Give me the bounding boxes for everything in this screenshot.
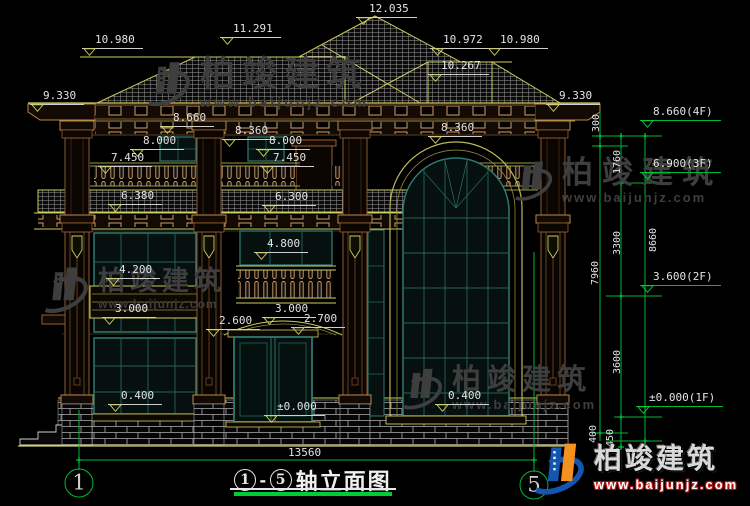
level-value: 8.660: [173, 111, 206, 124]
level-marker: 10.267: [428, 60, 489, 75]
level-value: 0.400: [448, 389, 481, 402]
level-value: 12.035: [369, 2, 409, 15]
site-logo-brand: 柏竣建筑: [594, 445, 738, 473]
axis-bubble-1: 1: [65, 469, 94, 498]
level-value: 10.972: [443, 33, 483, 46]
level-triangle-icon: [83, 48, 96, 56]
level-triangle-icon: [255, 252, 268, 260]
vertical-dimension: 3600: [613, 350, 623, 374]
level-value: ±0.000: [277, 400, 317, 413]
site-logo-icon: [528, 436, 588, 500]
level-triangle-icon: [547, 104, 560, 112]
level-value: 6.900(3F): [653, 157, 713, 170]
level-value: 10.980: [95, 33, 135, 46]
level-triangle-icon: [637, 406, 650, 414]
vertical-dimension: 8660: [649, 228, 659, 252]
floor-level-marker: 8.660(4F): [640, 106, 721, 121]
level-triangle-icon: [488, 48, 501, 56]
level-triangle-icon: [436, 404, 449, 412]
level-marker: 4.200: [106, 264, 160, 279]
vertical-dimension: 7960: [591, 261, 601, 285]
level-marker: 10.980: [82, 34, 143, 49]
level-triangle-icon: [99, 166, 112, 174]
level-triangle-icon: [263, 317, 276, 325]
level-value: 9.330: [559, 89, 592, 102]
level-marker: 10.972: [430, 34, 491, 49]
level-triangle-icon: [31, 104, 44, 112]
level-value: 10.980: [500, 33, 540, 46]
level-marker: 11.291: [220, 23, 281, 38]
level-marker: 9.330: [30, 90, 84, 105]
level-triangle-icon: [431, 48, 444, 56]
level-marker: 8.660: [160, 112, 214, 127]
level-value: 4.200: [119, 263, 152, 276]
level-triangle-icon: [207, 329, 220, 337]
overall-dimension: 13560: [288, 446, 321, 459]
level-marker: 3.000: [102, 303, 156, 318]
title-green-bar: [234, 492, 392, 496]
level-marker: 6.300: [262, 191, 316, 206]
level-triangle-icon: [109, 404, 122, 412]
level-value: 6.300: [275, 190, 308, 203]
vertical-dimension: 1760: [613, 150, 623, 174]
level-triangle-icon: [161, 126, 174, 134]
floor-level-marker: ±0.000(1F): [636, 392, 723, 407]
level-value: 6.380: [121, 189, 154, 202]
level-marker: 6.380: [108, 190, 162, 205]
level-value: 2.600: [219, 314, 252, 327]
level-triangle-icon: [103, 317, 116, 325]
level-value: 8.000: [143, 134, 176, 147]
level-marker: 4.800: [254, 238, 308, 253]
level-marker: ±0.000: [264, 401, 325, 416]
level-value: 9.330: [43, 89, 76, 102]
level-value: 8.660(4F): [653, 105, 713, 118]
level-value: 8.000: [269, 134, 302, 147]
vertical-dimension: 3300: [613, 231, 623, 255]
level-marker: 0.400: [435, 390, 489, 405]
level-marker: 0.400: [108, 390, 162, 405]
level-triangle-icon: [263, 205, 276, 213]
level-triangle-icon: [109, 204, 122, 212]
level-marker: 9.330: [546, 90, 600, 105]
annotation-layer: 12.03510.98011.29110.97210.98010.2679.33…: [0, 0, 750, 506]
title-dash: -: [258, 471, 268, 490]
site-logo: 柏竣建筑 www.baijunjz.com: [528, 436, 738, 500]
level-triangle-icon: [641, 172, 654, 180]
title-underline: [230, 488, 396, 490]
site-logo-site: www.baijunjz.com: [594, 477, 738, 492]
level-value: ±0.000(1F): [649, 391, 715, 404]
level-triangle-icon: [223, 139, 236, 147]
level-value: 10.267: [441, 59, 481, 72]
floor-level-marker: 3.600(2F): [640, 271, 721, 286]
level-value: 3.000: [115, 302, 148, 315]
level-marker: 8.000: [256, 135, 310, 150]
level-value: 0.400: [121, 389, 154, 402]
level-value: 8.360: [441, 121, 474, 134]
vertical-dimension: 300: [592, 114, 602, 132]
level-value: 3.600(2F): [653, 270, 713, 283]
level-marker: 7.450: [260, 152, 314, 167]
level-marker: 8.000: [130, 135, 184, 150]
level-triangle-icon: [292, 327, 305, 335]
level-marker: 2.700: [291, 313, 345, 328]
level-marker: 2.600: [206, 315, 260, 330]
level-triangle-icon: [357, 17, 370, 25]
level-triangle-icon: [265, 415, 278, 423]
level-marker: 10.980: [487, 34, 548, 49]
level-value: 7.450: [111, 151, 144, 164]
level-value: 2.700: [304, 312, 337, 325]
level-marker: 7.450: [98, 152, 152, 167]
level-value: 7.450: [273, 151, 306, 164]
level-value: 11.291: [233, 22, 273, 35]
level-marker: 8.360: [428, 122, 482, 137]
floor-level-marker: 6.900(3F): [640, 158, 721, 173]
level-triangle-icon: [261, 166, 274, 174]
level-triangle-icon: [429, 136, 442, 144]
cad-canvas: 柏竣建筑 www.baijunjz.com 柏竣建筑 www.baijunjz.…: [0, 0, 750, 506]
level-triangle-icon: [429, 74, 442, 82]
level-marker: 12.035: [356, 3, 417, 18]
level-triangle-icon: [107, 278, 120, 286]
level-triangle-icon: [641, 120, 654, 128]
level-triangle-icon: [641, 285, 654, 293]
level-triangle-icon: [221, 37, 234, 45]
level-value: 4.800: [267, 237, 300, 250]
